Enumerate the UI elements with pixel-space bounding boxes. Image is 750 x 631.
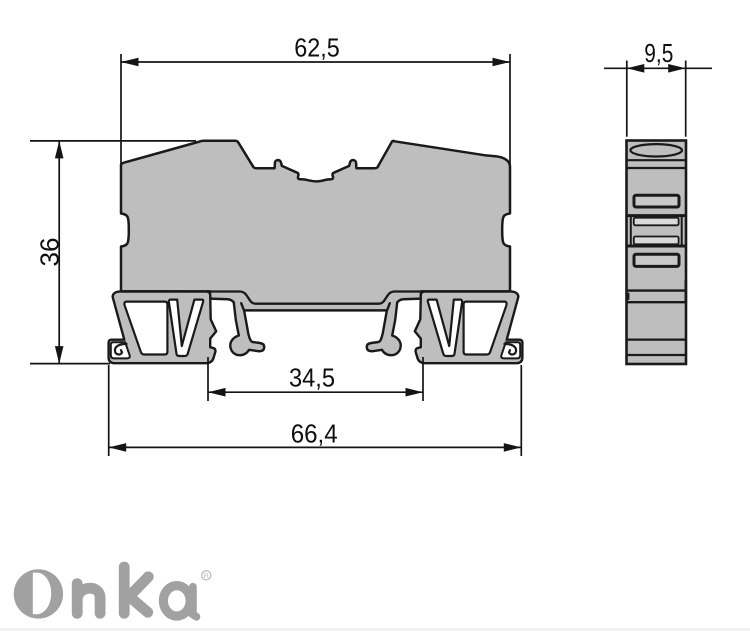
svg-text:36: 36: [37, 238, 65, 267]
svg-text:9,5: 9,5: [644, 40, 673, 68]
svg-text:34,5: 34,5: [289, 365, 335, 393]
svg-text:R: R: [204, 571, 209, 580]
svg-text:62,5: 62,5: [294, 35, 340, 63]
svg-text:66,4: 66,4: [291, 421, 338, 449]
